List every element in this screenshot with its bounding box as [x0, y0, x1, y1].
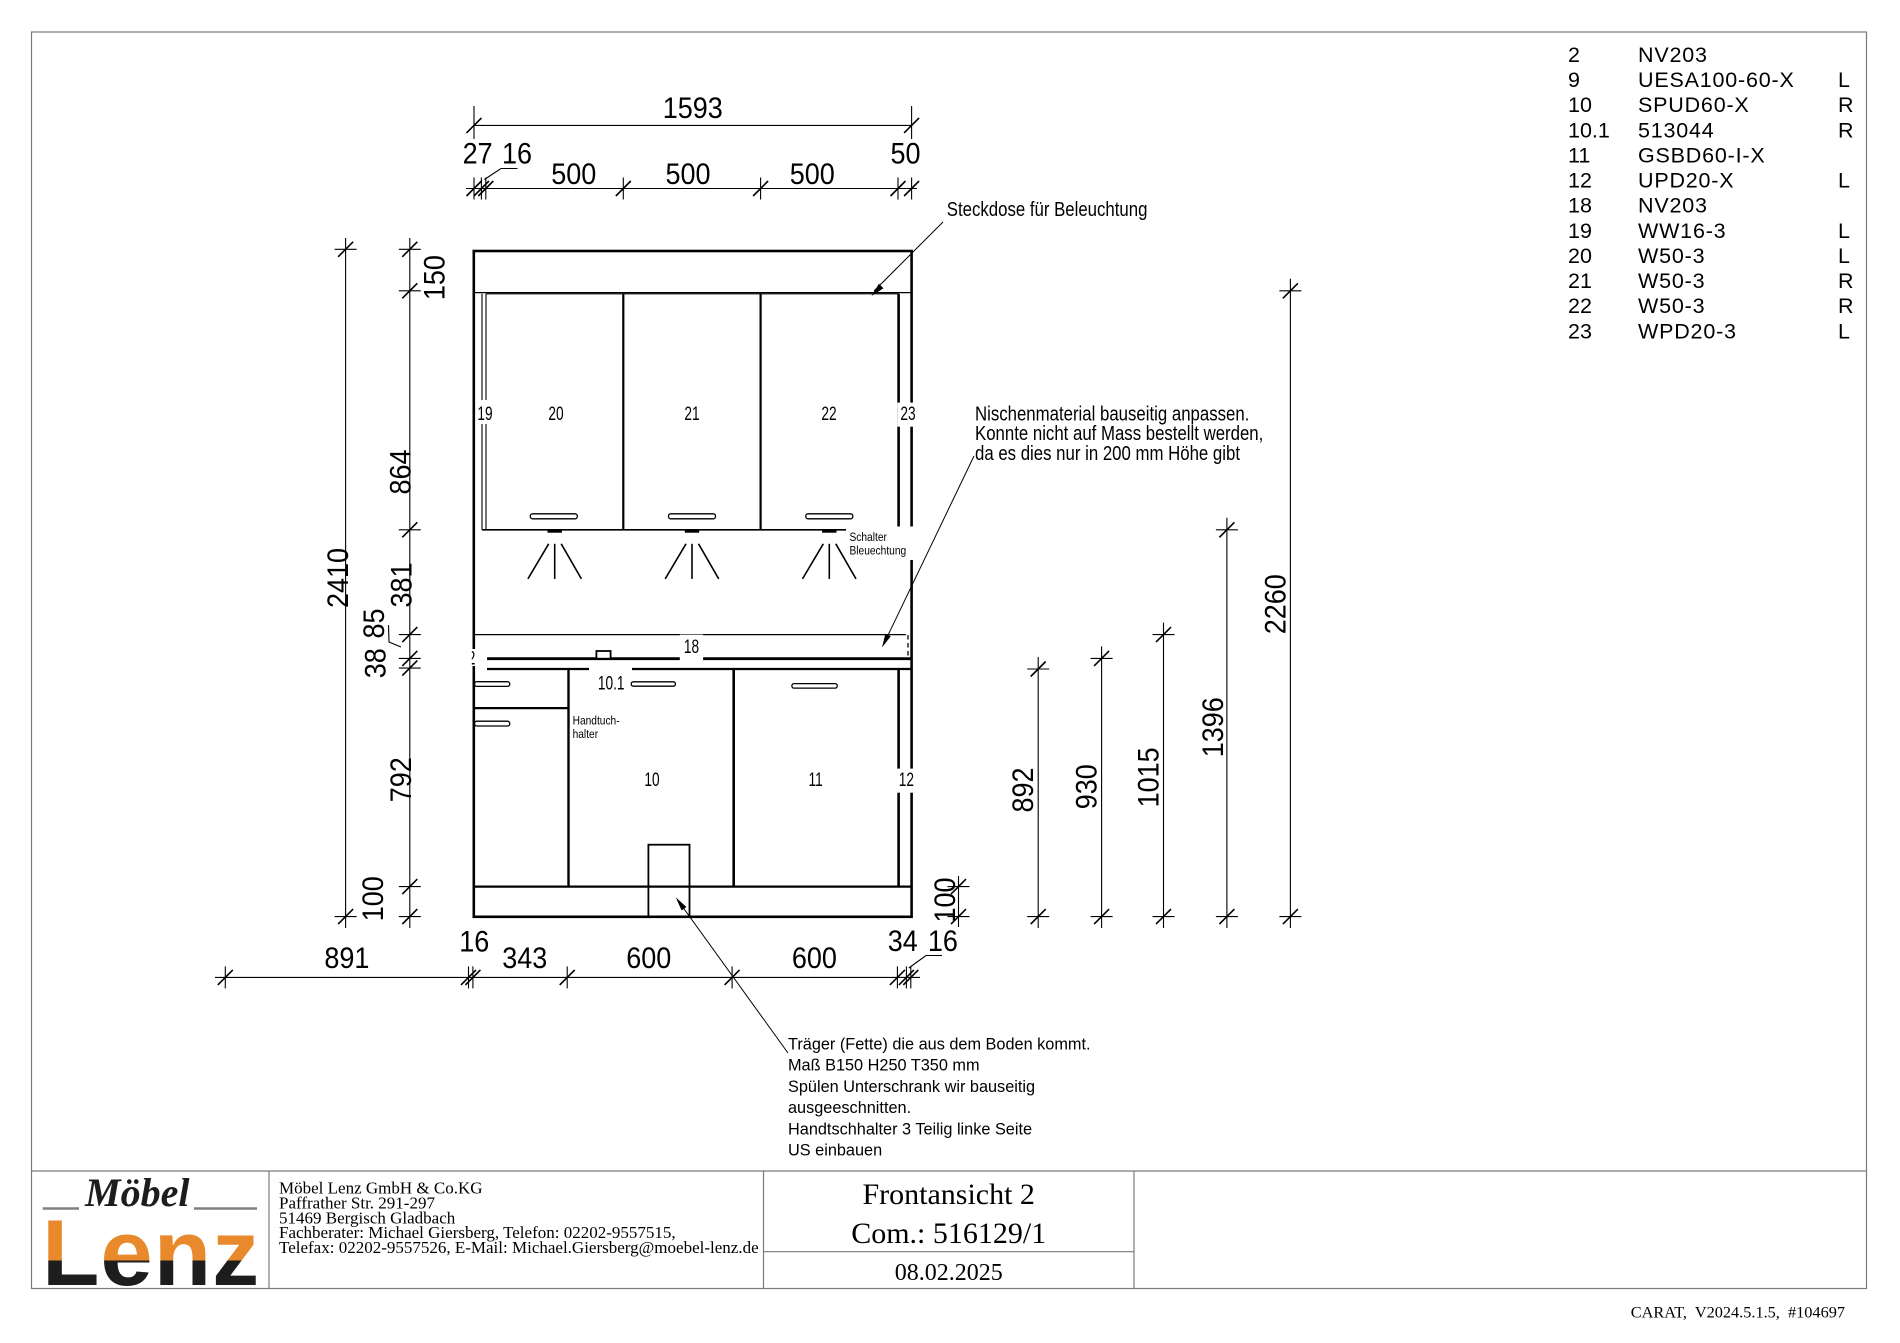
svg-text:R: R	[1838, 269, 1854, 293]
svg-text:22: 22	[1568, 294, 1592, 318]
svg-text:1015: 1015	[1132, 747, 1166, 807]
svg-text:2: 2	[1568, 43, 1580, 67]
svg-text:1396: 1396	[1197, 697, 1231, 757]
svg-text:38: 38	[359, 648, 393, 678]
svg-text:500: 500	[551, 158, 596, 192]
svg-text:20: 20	[1568, 244, 1592, 268]
svg-text:CARAT, V2024.5.1.5, #104697: CARAT, V2024.5.1.5, #104697	[1631, 1303, 1845, 1322]
svg-text:WW16-3: WW16-3	[1638, 219, 1726, 243]
svg-text:600: 600	[626, 942, 671, 976]
svg-text:343: 343	[502, 942, 547, 976]
svg-text:23: 23	[1568, 319, 1592, 343]
svg-text:R: R	[1838, 118, 1854, 142]
svg-text:1593: 1593	[663, 92, 723, 126]
svg-text:500: 500	[790, 158, 835, 192]
svg-text:12: 12	[899, 769, 914, 791]
svg-text:11: 11	[808, 769, 822, 791]
svg-text:22: 22	[821, 403, 836, 425]
svg-text:ausgeeschnitten.: ausgeeschnitten.	[788, 1099, 911, 1117]
svg-text:halter: halter	[573, 728, 599, 741]
svg-text:US einbauen: US einbauen	[788, 1142, 882, 1160]
svg-text:10.1: 10.1	[598, 672, 625, 694]
svg-text:150: 150	[418, 255, 452, 300]
svg-text:UESA100-60-X: UESA100-60-X	[1638, 68, 1795, 92]
svg-text:9: 9	[1568, 68, 1580, 92]
svg-text:Schalter: Schalter	[850, 531, 888, 544]
svg-text:891: 891	[324, 942, 369, 976]
svg-text:10: 10	[1568, 93, 1592, 117]
svg-text:NV203: NV203	[1638, 43, 1708, 67]
svg-text:381: 381	[385, 562, 419, 607]
svg-text:10.1: 10.1	[1568, 118, 1610, 142]
svg-text:W50-3: W50-3	[1638, 244, 1705, 268]
svg-text:L: L	[1838, 319, 1850, 343]
svg-text:513044: 513044	[1638, 118, 1715, 142]
svg-text:Com.: 516129/1: Com.: 516129/1	[851, 1217, 1046, 1250]
svg-text:Bleuechtung: Bleuechtung	[850, 545, 907, 558]
svg-text:WPD20-3: WPD20-3	[1638, 319, 1737, 343]
svg-text:892: 892	[1007, 767, 1041, 812]
svg-text:2260: 2260	[1259, 574, 1293, 634]
svg-text:SPUD60-X: SPUD60-X	[1638, 93, 1750, 117]
svg-text:16: 16	[502, 137, 532, 171]
svg-text:2410: 2410	[322, 548, 356, 608]
svg-text:27: 27	[463, 137, 493, 171]
svg-text:11: 11	[1568, 144, 1590, 168]
svg-text:100: 100	[357, 876, 391, 921]
svg-text:500: 500	[665, 158, 710, 192]
svg-text:GSBD60-I-X: GSBD60-I-X	[1638, 144, 1765, 168]
svg-text:18: 18	[684, 636, 699, 658]
svg-text:930: 930	[1070, 764, 1104, 809]
svg-text:L: L	[1838, 169, 1850, 193]
svg-text:L: L	[1838, 68, 1850, 92]
svg-text:Spülen Unterschrank wir bausei: Spülen Unterschrank wir bauseitig	[788, 1078, 1035, 1096]
svg-text:19: 19	[477, 403, 492, 425]
svg-text:23: 23	[900, 403, 915, 425]
svg-text:600: 600	[792, 942, 837, 976]
svg-text:34: 34	[888, 925, 918, 959]
svg-text:Handtschhalter 3 Teilig linke: Handtschhalter 3 Teilig linke Seite	[788, 1120, 1032, 1138]
svg-text:Lenz: Lenz	[42, 1200, 260, 1305]
svg-text:Handtuch-: Handtuch-	[573, 715, 620, 728]
svg-text:L: L	[1838, 244, 1850, 268]
svg-text:UPD20-X: UPD20-X	[1638, 169, 1734, 193]
svg-text:Träger (Fette) die aus dem Bod: Träger (Fette) die aus dem Boden kommt.	[788, 1036, 1091, 1054]
svg-text:Steckdose für Beleuchtung: Steckdose für Beleuchtung	[947, 198, 1148, 221]
svg-text:da es dies nur in 200 mm Höhe: da es dies nur in 200 mm Höhe gibt	[975, 441, 1240, 464]
svg-text:864: 864	[384, 449, 418, 494]
svg-text:R: R	[1838, 93, 1854, 117]
svg-text:08.02.2025: 08.02.2025	[895, 1260, 1003, 1286]
svg-text:20: 20	[548, 403, 563, 425]
svg-text:Telefax: 02202-9557526, E-Mail: Telefax: 02202-9557526, E-Mail: Michael.…	[279, 1238, 759, 1257]
svg-text:21: 21	[684, 403, 699, 425]
svg-text:R: R	[1838, 294, 1854, 318]
svg-text:100: 100	[929, 877, 963, 922]
svg-text:50: 50	[890, 137, 920, 171]
svg-text:W50-3: W50-3	[1638, 269, 1705, 293]
svg-text:85: 85	[358, 608, 392, 638]
svg-text:Maß B150 H250 T350 mm: Maß B150 H250 T350 mm	[788, 1057, 980, 1075]
svg-text:21: 21	[1568, 269, 1592, 293]
svg-text:W50-3: W50-3	[1638, 294, 1705, 318]
svg-text:18: 18	[1568, 194, 1592, 218]
svg-text:L: L	[1838, 219, 1850, 243]
svg-text:12: 12	[1568, 169, 1592, 193]
svg-text:16: 16	[928, 925, 958, 959]
svg-text:Frontansicht 2: Frontansicht 2	[862, 1178, 1035, 1211]
svg-text:792: 792	[385, 757, 419, 802]
svg-text:16: 16	[459, 925, 489, 959]
svg-text:NV203: NV203	[1638, 194, 1708, 218]
svg-text:19: 19	[1568, 219, 1592, 243]
svg-text:10: 10	[644, 769, 659, 791]
